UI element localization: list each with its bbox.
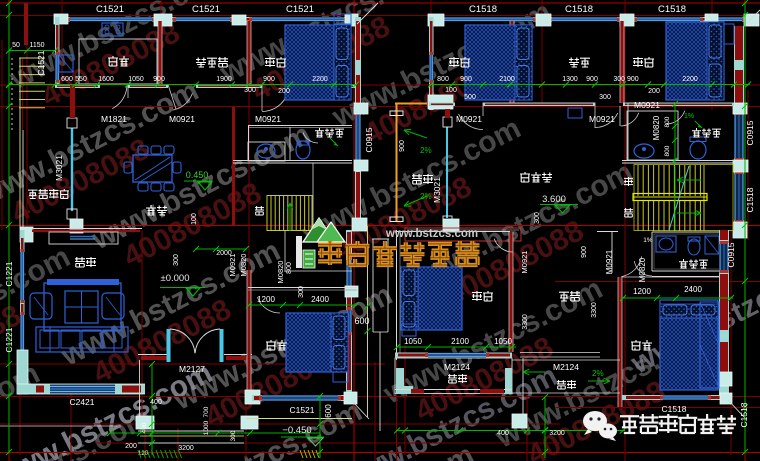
svg-text:C1518: C1518	[745, 187, 755, 212]
svg-text:200: 200	[648, 88, 660, 95]
svg-text:www.bstzcs.com: www.bstzcs.com	[385, 228, 478, 240]
svg-text:1000: 1000	[203, 420, 210, 435]
svg-text:C1518: C1518	[565, 4, 593, 15]
svg-text:50: 50	[12, 42, 20, 49]
svg-text:900: 900	[586, 76, 598, 83]
svg-text:C2421: C2421	[69, 397, 94, 407]
svg-text:500: 500	[464, 94, 476, 101]
svg-text:2400: 2400	[311, 295, 329, 304]
svg-text:3200: 3200	[549, 430, 565, 437]
svg-text:M0921: M0921	[520, 251, 529, 274]
svg-text:2200: 2200	[312, 76, 328, 83]
svg-text:C1521: C1521	[96, 4, 124, 15]
svg-text:1050: 1050	[128, 76, 144, 83]
svg-text:M0921: M0921	[169, 114, 195, 124]
svg-text:300: 300	[298, 286, 305, 298]
svg-text:300 900: 300 900	[613, 76, 638, 83]
svg-text:1150: 1150	[29, 42, 44, 49]
svg-text:900: 900	[460, 76, 472, 83]
svg-text:300: 300	[230, 430, 237, 441]
svg-text:2200: 2200	[682, 76, 698, 83]
svg-text:700: 700	[203, 406, 210, 417]
svg-text:1200: 1200	[633, 287, 651, 296]
svg-text:300: 300	[173, 254, 180, 266]
svg-text:2400: 2400	[684, 285, 702, 294]
svg-text:100: 100	[191, 213, 198, 225]
svg-text:3.600: 3.600	[542, 194, 566, 205]
svg-text:3300: 3300	[522, 314, 529, 330]
svg-text:900: 900	[153, 76, 165, 83]
svg-text:600: 600	[324, 404, 333, 418]
svg-text:M0820: M0820	[638, 257, 647, 282]
svg-text:M0921: M0921	[456, 114, 482, 124]
svg-text:3300: 3300	[591, 302, 598, 318]
svg-text:C1518: C1518	[661, 404, 686, 414]
svg-text:1600: 1600	[98, 76, 114, 83]
svg-text:M0921: M0921	[255, 114, 281, 124]
svg-text:C1521: C1521	[192, 4, 220, 15]
svg-text:1900: 1900	[216, 76, 232, 83]
svg-text:2%: 2%	[420, 146, 432, 155]
svg-text:M0820: M0820	[239, 254, 248, 277]
svg-text:M0921: M0921	[634, 100, 660, 110]
svg-text:C0915: C0915	[726, 242, 736, 267]
svg-text:900: 900	[399, 140, 406, 152]
svg-text:±0.000: ±0.000	[161, 273, 190, 284]
svg-text:800: 800	[437, 76, 449, 83]
svg-text:C1221: C1221	[4, 327, 14, 352]
svg-text:2%: 2%	[420, 192, 432, 201]
svg-text:M2124: M2124	[553, 362, 579, 372]
svg-text:300: 300	[244, 87, 256, 94]
svg-text:C0915: C0915	[364, 127, 374, 152]
svg-text:2100: 2100	[499, 76, 515, 83]
svg-text:C1521: C1521	[286, 4, 314, 15]
svg-text:300: 300	[534, 212, 541, 224]
svg-text:M3021: M3021	[54, 155, 64, 181]
svg-text:1%: 1%	[643, 237, 653, 244]
svg-text:400: 400	[150, 399, 162, 406]
svg-text:1200: 1200	[257, 295, 275, 304]
svg-text:550: 550	[75, 76, 87, 83]
svg-text:−0.450: −0.450	[282, 425, 311, 436]
svg-text:400: 400	[141, 422, 148, 433]
svg-text:C1221: C1221	[4, 261, 14, 286]
svg-text:100: 100	[445, 87, 457, 94]
svg-text:900: 900	[263, 76, 275, 83]
svg-text:C1518: C1518	[469, 4, 497, 15]
svg-text:2000: 2000	[216, 250, 232, 257]
svg-text:2100: 2100	[451, 337, 469, 346]
svg-text:C0915: C0915	[745, 120, 755, 145]
svg-text:300: 300	[599, 94, 611, 101]
svg-text:C1518: C1518	[739, 402, 749, 427]
svg-text:600: 600	[354, 316, 369, 326]
svg-text:C1518: C1518	[658, 4, 686, 15]
svg-text:200: 200	[278, 88, 290, 95]
svg-text:M2124: M2124	[444, 362, 470, 372]
svg-text:200: 200	[125, 443, 137, 450]
svg-text:3200: 3200	[178, 445, 194, 452]
svg-text:M0921: M0921	[605, 249, 614, 274]
svg-text:600: 600	[61, 76, 73, 83]
svg-text:2%: 2%	[592, 369, 604, 378]
svg-text:800: 800	[664, 116, 671, 127]
svg-text:C1521: C1521	[289, 405, 314, 415]
svg-text:0.450: 0.450	[186, 170, 209, 180]
svg-text:M2127: M2127	[179, 364, 205, 374]
svg-text:1%: 1%	[684, 113, 694, 120]
svg-text:M3021: M3021	[432, 177, 442, 203]
svg-text:1050: 1050	[404, 337, 422, 346]
svg-text:800: 800	[286, 262, 293, 274]
svg-text:M0921: M0921	[589, 114, 615, 124]
svg-text:1050: 1050	[494, 337, 512, 346]
svg-text:1300: 1300	[562, 76, 578, 83]
svg-text:M0820: M0820	[652, 115, 661, 140]
svg-text:M0820: M0820	[276, 261, 285, 284]
svg-text:M1821: M1821	[101, 114, 127, 124]
svg-text:400: 400	[497, 430, 509, 437]
svg-text:900: 900	[581, 246, 588, 258]
svg-text:800: 800	[664, 145, 671, 156]
svg-text:C1521: C1521	[36, 50, 46, 75]
